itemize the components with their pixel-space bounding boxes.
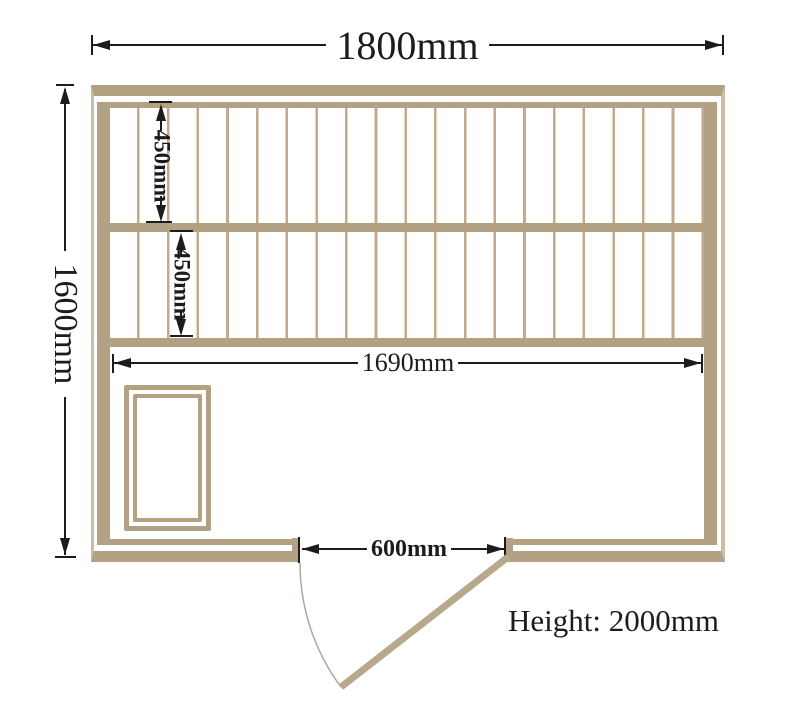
dim-label-overall-width: 1800mm bbox=[326, 26, 489, 66]
dim-line bbox=[64, 89, 66, 251]
height-note: Height: 2000mm bbox=[508, 604, 719, 638]
dim-line bbox=[458, 362, 702, 364]
floor-plan-canvas: 1800mm 1600mm 450mm 450mm bbox=[0, 0, 800, 722]
dim-tick bbox=[55, 556, 76, 558]
dim-label-interior-width: 1690mm bbox=[358, 350, 458, 376]
dim-line bbox=[93, 44, 326, 46]
door-jamb-left-tick bbox=[298, 537, 300, 563]
lower-bench-slats bbox=[110, 232, 704, 338]
door-jamb-right bbox=[506, 538, 513, 562]
dim-line bbox=[114, 362, 358, 364]
dim-line bbox=[64, 397, 66, 555]
dim-tick bbox=[149, 101, 172, 103]
dim-tick bbox=[170, 230, 193, 232]
dim-label-overall-depth: 1600mm bbox=[48, 264, 82, 385]
heater-inner-frame bbox=[133, 394, 202, 522]
dim-line bbox=[302, 548, 367, 550]
upper-bench-front-rail bbox=[110, 223, 704, 232]
door-swing-arc-icon bbox=[300, 563, 341, 687]
dim-line bbox=[451, 548, 504, 550]
door-jamb-right-tick bbox=[504, 537, 506, 563]
dim-tick bbox=[56, 84, 74, 86]
door-leaf-icon bbox=[341, 557, 508, 687]
dim-tick bbox=[722, 35, 724, 55]
dim-label-lower-bench-depth: 450mm bbox=[171, 248, 194, 321]
dim-label-door-width: 600mm bbox=[367, 537, 451, 561]
upper-bench-slats bbox=[110, 108, 704, 223]
lower-bench-front-rail bbox=[110, 338, 704, 347]
dim-line bbox=[489, 44, 722, 46]
dim-label-upper-bench-depth: 450mm bbox=[151, 130, 174, 203]
